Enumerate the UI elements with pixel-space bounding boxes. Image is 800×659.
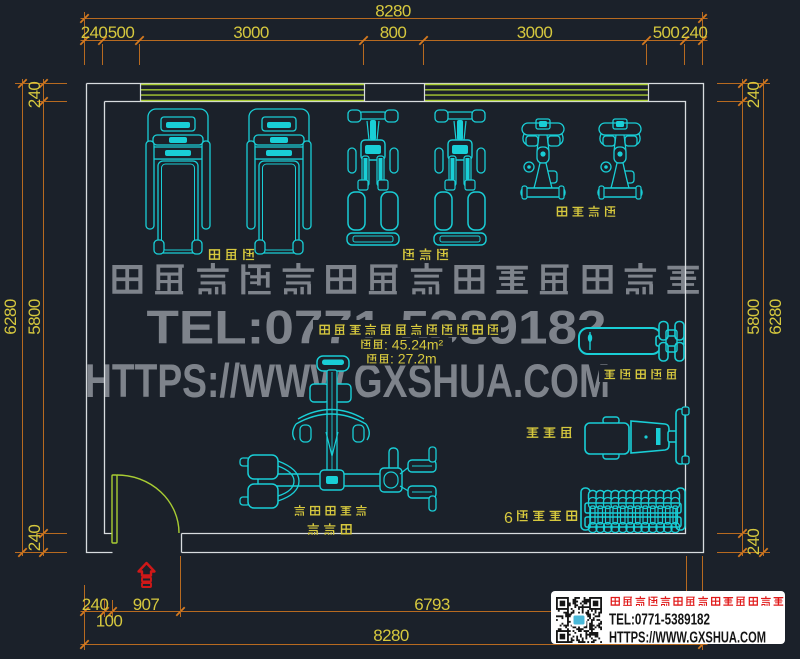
svg-text:3000: 3000: [233, 23, 269, 42]
svg-text:8280: 8280: [373, 626, 409, 645]
svg-text:5800: 5800: [744, 299, 763, 335]
svg-text:: 27.2m: : 27.2m: [390, 351, 437, 367]
svg-text:6: 6: [504, 510, 513, 527]
svg-text:240: 240: [681, 23, 708, 42]
svg-text:3000: 3000: [517, 23, 553, 42]
svg-text:HTTPS://WWW.GXSHUA.COM: HTTPS://WWW.GXSHUA.COM: [609, 630, 766, 647]
svg-text:240: 240: [25, 525, 44, 552]
svg-text:500: 500: [108, 23, 135, 42]
svg-text:5800: 5800: [25, 299, 44, 335]
svg-text:240: 240: [744, 82, 763, 109]
svg-text:240: 240: [744, 529, 763, 556]
svg-text:500: 500: [653, 23, 680, 42]
svg-text:6280: 6280: [766, 299, 785, 335]
svg-text:8280: 8280: [375, 2, 411, 21]
svg-text:240: 240: [25, 82, 44, 109]
svg-text:6793: 6793: [414, 595, 450, 614]
svg-text:6280: 6280: [1, 299, 20, 335]
svg-text:TEL:0771-5389182: TEL:0771-5389182: [609, 612, 710, 629]
svg-text:907: 907: [133, 595, 160, 614]
svg-text:800: 800: [380, 23, 407, 42]
svg-text:240: 240: [81, 23, 108, 42]
svg-text:100: 100: [96, 612, 123, 631]
